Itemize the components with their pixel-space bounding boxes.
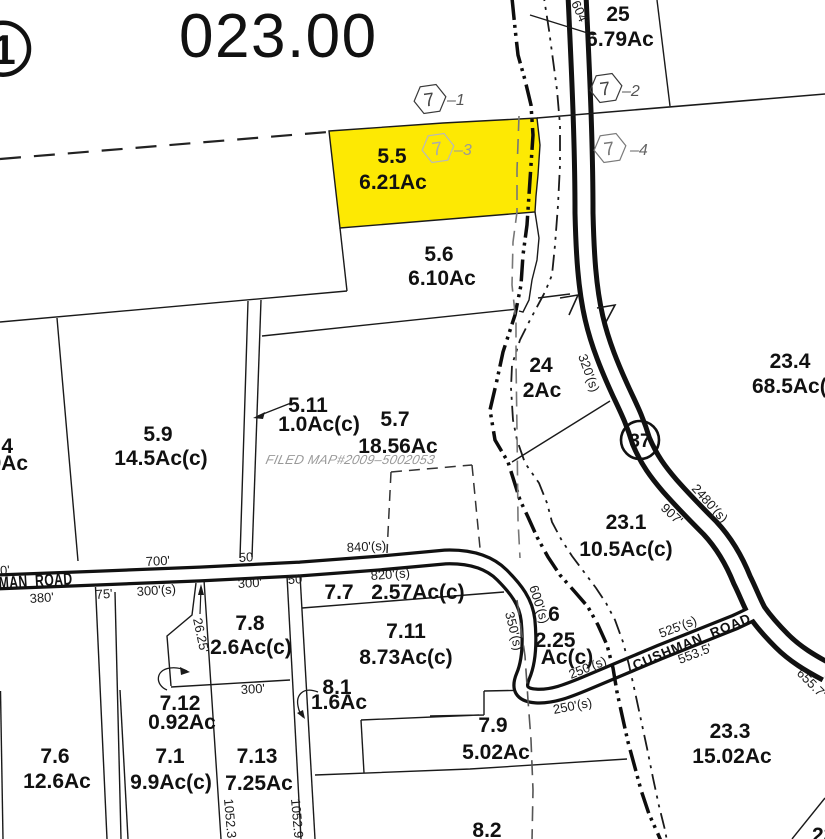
svg-text:23: 23 [812,824,825,839]
svg-text:24: 24 [529,354,553,377]
svg-text:7.6: 7.6 [40,745,69,768]
svg-text:12.6Ac: 12.6Ac [23,770,91,793]
svg-text:0.92Ac: 0.92Ac [148,711,216,734]
svg-text:15.02Ac: 15.02Ac [692,745,772,768]
svg-text:5.5: 5.5 [377,145,407,168]
svg-text:23.4: 23.4 [770,350,811,373]
svg-text:1.0Ac(c): 1.0Ac(c) [278,413,360,436]
svg-text:10.5Ac(c): 10.5Ac(c) [579,538,672,561]
svg-text:14.5Ac(c): 14.5Ac(c) [114,447,207,470]
svg-text:7.7: 7.7 [324,581,353,604]
svg-text:23.3: 23.3 [710,720,751,743]
svg-text:5.9: 5.9 [143,423,172,446]
svg-text:5.7: 5.7 [380,408,409,431]
svg-text:380': 380' [29,589,54,606]
svg-text:7.9: 7.9 [478,714,507,737]
svg-text:37: 37 [629,431,650,452]
svg-text:700': 700' [145,553,170,569]
svg-text:FILED MAP#2009–5002053: FILED MAP#2009–5002053 [264,452,436,467]
svg-text:9Ac: 9Ac [0,452,28,475]
svg-text:50: 50 [238,549,253,565]
svg-text:2.6Ac(c): 2.6Ac(c) [210,636,292,659]
svg-text:8.73Ac(c): 8.73Ac(c) [359,646,452,669]
svg-text:300': 300' [240,681,265,697]
svg-text:–1: –1 [446,92,465,109]
svg-text:820'(s): 820'(s) [370,565,410,583]
svg-text:9.9Ac(c): 9.9Ac(c) [130,771,212,794]
svg-text:75': 75' [95,586,113,602]
svg-text:1: 1 [0,26,16,73]
svg-text:6.79Ac: 6.79Ac [586,28,654,51]
svg-text:7.1: 7.1 [155,745,185,768]
svg-text:–2: –2 [621,83,640,100]
svg-text:023.00: 023.00 [179,2,378,71]
svg-text:–3: –3 [453,142,472,159]
svg-text:2Ac: 2Ac [523,379,562,402]
svg-text:600': 600' [0,562,10,579]
svg-text:1.6Ac: 1.6Ac [311,691,367,714]
svg-text:300'(s): 300'(s) [136,581,176,599]
svg-text:6.10Ac: 6.10Ac [408,267,476,290]
svg-text:8.2: 8.2 [472,819,501,839]
svg-text:6.21Ac: 6.21Ac [359,171,427,194]
svg-text:7.11: 7.11 [386,620,426,643]
svg-text:300': 300' [237,575,262,591]
svg-text:25: 25 [606,3,630,26]
svg-text:7.25Ac: 7.25Ac [225,772,293,795]
svg-text:23.1: 23.1 [606,511,647,534]
svg-text:840'(s): 840'(s) [346,538,386,555]
svg-text:68.5Ac(c): 68.5Ac(c) [752,375,825,398]
svg-text:7.13: 7.13 [237,745,278,768]
svg-text:–4: –4 [629,142,648,159]
svg-text:2.57Ac(c): 2.57Ac(c) [371,581,464,604]
svg-text:7.8: 7.8 [235,612,265,635]
svg-text:5.02Ac: 5.02Ac [462,741,530,764]
svg-text:5.6: 5.6 [424,243,453,266]
svg-text:50: 50 [287,571,302,587]
